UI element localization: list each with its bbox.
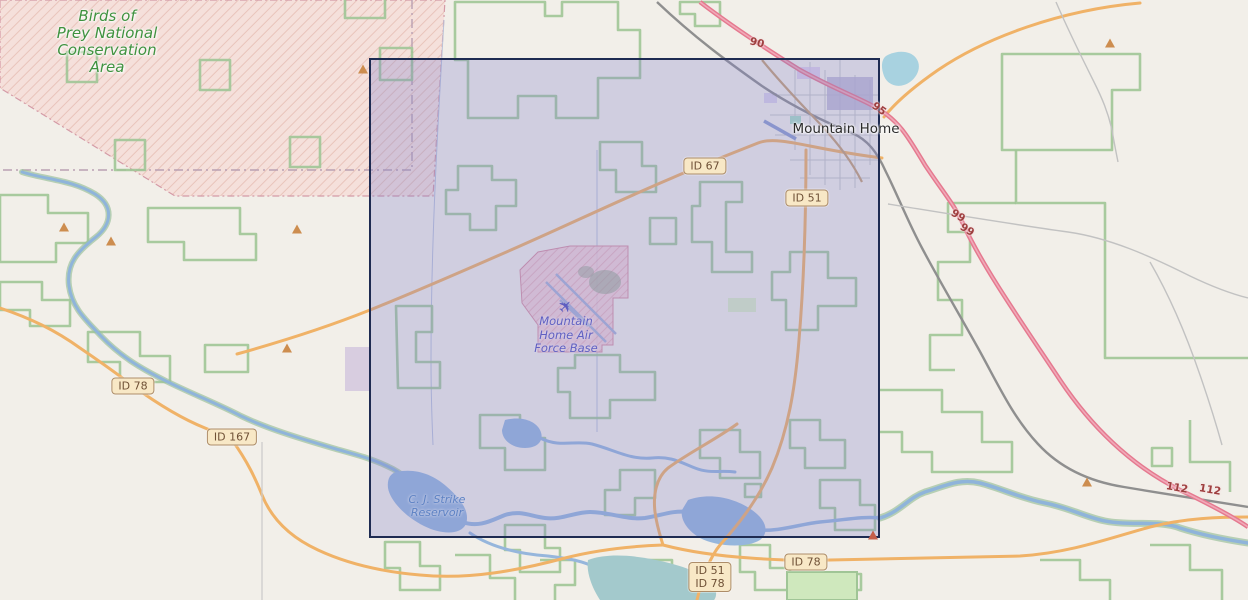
selection-overflow-patch	[345, 347, 369, 391]
selection-rectangle[interactable]	[369, 58, 880, 538]
park-area	[787, 572, 857, 600]
map-canvas[interactable]: Birds of Prey National Conservation Area…	[0, 0, 1248, 600]
